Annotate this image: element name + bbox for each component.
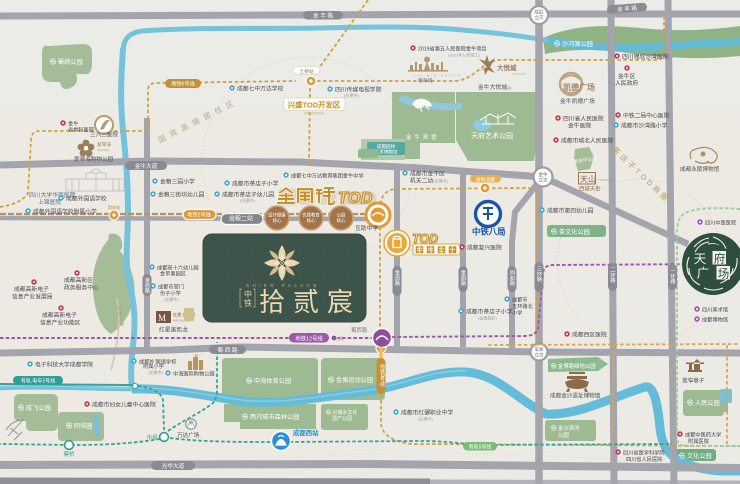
svg-text:成都高十六幼儿园: 成都高十六幼儿园 [157,264,199,272]
svg-text:金牛区: 金牛区 [618,72,636,80]
svg-text:政务服务中心: 政务服务中心 [64,284,99,292]
svg-text:三环路: 三环路 [536,266,542,283]
svg-text:㉿ 成飞公园: ㉿ 成飞公园 [18,404,51,412]
svg-text:GUI BIN CHENG: GUI BIN CHENG [413,74,462,78]
svg-text:XINGSHENG: XINGSHENG [304,112,325,116]
svg-text:㉿ 茶文化公园: ㉿ 茶文化公园 [551,228,590,236]
svg-text:(在建中): (在建中) [240,197,255,203]
svg-text:一环路: 一环路 [669,268,675,285]
svg-text:成都复兴医院: 成都复兴医院 [467,244,502,252]
svg-text:㉿ 同培园: ㉿ 同培园 [66,422,92,430]
svg-text:金牛宾馆: 金牛宾馆 [406,133,440,141]
svg-text:互助中学: 互助中学 [355,224,378,232]
svg-text:中坝: 中坝 [147,434,158,442]
svg-text:成都外国语学校附属小学: 成都外国语学校附属小学 [33,208,97,216]
svg-text:成都中医药大学: 成都中医药大学 [685,431,721,439]
svg-text:TOD: TOD [338,190,373,207]
svg-text:兴盛TOD开发区: 兴盛TOD开发区 [288,101,341,110]
svg-text:凯德广场: 凯德广场 [563,82,595,92]
svg-text:(金周校区): (金周校区) [478,315,497,321]
svg-text:(在建): (在建) [503,85,512,90]
svg-text:万达广场: 万达广场 [177,431,200,439]
svg-text:五环路北: 五环路北 [512,302,534,310]
svg-text:成都高新电子: 成都高新电子 [14,285,49,293]
svg-text:遗产公园: 遗产公园 [332,415,352,422]
svg-text:地铁2号线: 地铁2号线 [187,211,211,219]
svg-text:四川省人民医院: 四川省人民医院 [563,115,604,123]
svg-text:金 丰 路: 金 丰 路 [313,12,333,20]
svg-text:金牛: 金牛 [68,120,78,128]
svg-text:金牛大道: 金牛大道 [135,162,158,170]
svg-text:成都西区医院: 成都西区医院 [572,331,607,339]
svg-text:成都市金牛区: 成都市金牛区 [410,170,445,178]
svg-text:府: 府 [714,252,726,266]
svg-text:成都高新区: 成都高新区 [64,276,93,284]
svg-text:蜀 西 路: 蜀 西 路 [218,346,238,354]
svg-text:㉿ 兴城水文化: ㉿ 兴城水文化 [326,409,357,416]
svg-text:金粮二站: 金粮二站 [229,215,253,223]
svg-text:成都市妇女儿童中心医院: 成都市妇女儿童中心医院 [92,401,156,409]
svg-text:拾贰宸: 拾贰宸 [259,287,361,317]
svg-text:份子小学: 份子小学 [160,289,181,297]
svg-text:㉿ 两河城市森林公园: ㉿ 两河城市森林公园 [242,413,299,421]
svg-text:立交: 立交 [538,177,548,184]
svg-text:艺术博物馆: 艺术博物馆 [375,149,398,156]
svg-text:有轨5号线: 有轨5号线 [469,444,492,451]
svg-text:AIQINHAI: AIQINHAI [97,148,110,152]
svg-text:四川省人民医院: 四川省人民医院 [626,455,663,463]
svg-text:土桥站: 土桥站 [299,68,314,75]
svg-text:JOY CITY: JOY CITY [512,72,525,76]
svg-text:(在建中): (在建中) [148,369,163,375]
svg-text:人民政府: 人民政府 [615,79,638,87]
svg-text:四川锦欣沙湾医院: 四川锦欣沙湾医院 [622,53,669,61]
svg-text:信息产业功能区: 信息产业功能区 [40,319,81,327]
svg-text:四川省医学科学院: 四川省医学科学院 [623,449,665,457]
svg-text:2019省第五人民医院金牛项目: 2019省第五人民医院金牛项目 [418,45,487,53]
svg-text:(在建): (在建) [334,336,345,341]
svg-text:爱琴海: 爱琴海 [97,141,111,148]
svg-text:核心: 核心 [273,217,282,224]
svg-text:M: M [158,313,166,323]
svg-text:(在建中): (在建中) [344,92,359,98]
svg-text:TIANSHAN: TIANSHAN [598,178,613,182]
svg-text:(在建中): (在建中) [418,416,433,422]
svg-text:立交: 立交 [534,352,544,359]
svg-text:成都市茶店子小学: 成都市茶店子小学 [232,180,279,188]
svg-text:小学: 小学 [512,309,522,317]
svg-text:红星美凯龙: 红星美凯龙 [159,326,188,334]
svg-text:蜀西路: 蜀西路 [351,326,368,334]
svg-text:大悦城: 大悦城 [497,63,517,72]
svg-text:四川中医医院: 四川中医医院 [705,219,737,227]
svg-text:成都市红碾职业中学: 成都市红碾职业中学 [401,409,453,417]
svg-text:成都市第四幼儿园: 成都市第四幼儿园 [547,207,594,215]
svg-text:上锦医院: 上锦医院 [38,198,61,206]
svg-text:㉿ 金果运动公园: ㉿ 金果运动公园 [328,376,373,384]
svg-text:金阳路: 金阳路 [460,269,466,287]
svg-text:国宾站: 国宾站 [108,204,121,211]
svg-text:成都西站: 成都西站 [293,428,319,437]
svg-text:金牛医院: 金牛医院 [568,122,591,130]
svg-text:有轨.电车2号线: 有轨.电车2号线 [21,378,55,385]
svg-text:金桥路: 金桥路 [144,276,150,294]
svg-text:金牛凯德广场: 金牛凯德广场 [560,97,595,105]
svg-text:㉿ 蜀绣公园: ㉿ 蜀绣公园 [50,58,83,66]
svg-text:中海国际购物公园: 中海国际购物公园 [173,370,215,378]
svg-text:金苹果园区: 金苹果园区 [160,270,186,278]
svg-text:成都外国语学校: 成都外国语学校 [66,195,107,203]
svg-text:四川美术馆: 四川美术馆 [702,306,728,314]
svg-text:中铁二局中心医院: 中铁二局中心医院 [623,112,670,120]
svg-text:机关二幼(在建中): 机关二幼(在建中) [410,177,449,185]
svg-text:成都永陵博物馆: 成都永陵博物馆 [680,165,720,173]
svg-text:㉿ 中海体育公园: ㉿ 中海体育公园 [246,377,291,385]
svg-text:翡翠城: 翡翠城 [418,77,433,84]
svg-text:广: 广 [697,267,710,281]
svg-text:(在建中): (在建中) [164,296,179,302]
svg-text:天府艺术公园: 天府艺术公园 [471,131,513,140]
svg-text:地铁6号线: 地铁6号线 [171,80,195,88]
svg-text:宽窄巷子: 宽窄巷子 [682,377,705,385]
svg-text:公园: 公园 [558,432,569,439]
svg-text:(2021年12月竣工): (2021年12月竣工) [448,52,481,58]
svg-text:㉿ 人民公园: ㉿ 人民公园 [687,400,720,407]
svg-text:电子科技大学成都学院: 电子科技大学成都学院 [35,361,93,369]
svg-text:场: 场 [718,267,730,281]
svg-text:金科北路: 金科北路 [476,176,495,183]
svg-text:附属医院: 附属医院 [688,437,710,445]
svg-text:成都博物馆: 成都博物馆 [702,316,728,324]
svg-text:中铁八局: 中铁八局 [472,227,506,237]
svg-text:成都市: 成都市 [512,296,528,304]
svg-text:爱琴海购物公园: 爱琴海购物公园 [74,155,114,163]
svg-text:蔡桥: 蔡桥 [64,450,75,458]
svg-text:金周路: 金周路 [394,269,400,287]
svg-text:天山: 天山 [580,174,596,184]
svg-text:成都七中万达学校: 成都七中万达学校 [237,85,284,93]
svg-text:二环路: 二环路 [609,267,615,284]
svg-text:核心: 核心 [307,217,316,224]
svg-text:立交: 立交 [534,14,544,21]
svg-text:同和路: 同和路 [509,270,515,287]
svg-text:天: 天 [694,252,707,266]
svg-text:核心: 核心 [337,217,346,224]
svg-text:金粮三街坊幼儿园: 金粮三街坊幼儿园 [158,191,205,199]
svg-text:成都市茶店子小学: 成都市茶店子小学 [466,308,513,316]
svg-text:成都七中万达教育集团金牛中学: 成都七中万达教育集团金牛中学 [291,172,364,180]
svg-text:光华大道: 光华大道 [162,462,185,470]
svg-text:成都市营门: 成都市营门 [158,283,184,291]
svg-text:地铁12号线: 地铁12号线 [295,334,323,342]
svg-text:成都高新电子: 成都高新电子 [42,311,77,319]
svg-text:金粮三园小学: 金粮三园小学 [160,178,195,186]
svg-text:㉿ 沙河源公园: ㉿ 沙河源公园 [554,40,593,48]
svg-text:西城天街: 西城天街 [579,185,601,193]
svg-text:㉿ 金沙滨河: ㉿ 金沙滨河 [551,424,580,432]
svg-text:地铁9号线: 地铁9号线 [379,363,385,387]
svg-text:铁: 铁 [244,298,252,308]
svg-text:成都金沙遗址博物馆: 成都金沙遗址博物馆 [550,392,601,400]
svg-text:三六三医院: 三六三医院 [90,131,118,139]
svg-text:省骨科医院: 省骨科医院 [68,126,95,134]
svg-text:成都市沙湾路小学: 成都市沙湾路小学 [621,122,668,130]
svg-text:成都市城北人民医院: 成都市城北人民医院 [561,137,613,145]
svg-text:信息产业发展局: 信息产业发展局 [12,293,53,301]
svg-text:附属小学: 附属小学 [143,362,164,370]
svg-text:㉿ 文化公园: ㉿ 文化公园 [679,452,712,460]
svg-text:中: 中 [244,289,252,299]
svg-text:㉿ 金博路绿地公园: ㉿ 金博路绿地公园 [551,362,596,370]
